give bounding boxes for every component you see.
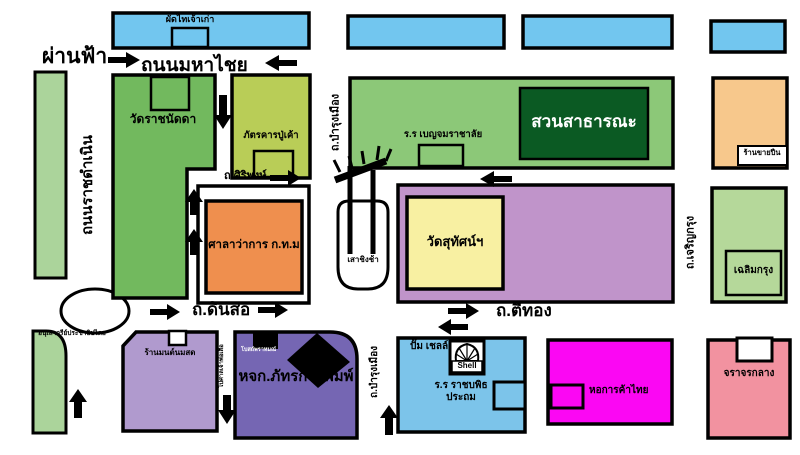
block-top-4 bbox=[711, 21, 785, 52]
place-label-wat-ratchanatda: วัดราชนัดดา bbox=[113, 113, 213, 126]
place-label-brahmin-temple: โบสถ์พราหมณ์ bbox=[241, 348, 276, 354]
arrow-right-icon bbox=[150, 304, 180, 320]
place-label-chamber-of-commerce: หอการค้าไทย bbox=[589, 386, 648, 397]
milk-shop-marker bbox=[169, 331, 186, 345]
arrow-up-icon bbox=[380, 405, 398, 435]
map-shapes-layer bbox=[0, 0, 800, 455]
arrow-right-icon bbox=[108, 52, 140, 68]
chamber-marker bbox=[551, 385, 583, 408]
place-label-milk-shop: ร้านมนต์นมสด bbox=[130, 349, 210, 357]
arrow-left-icon bbox=[265, 55, 297, 71]
arrow-up-icon bbox=[69, 389, 87, 418]
block-left-strip-top bbox=[35, 72, 66, 278]
street-label-bamrung-mueang-bottom: ถ.บำรุงเมือง bbox=[370, 328, 382, 416]
place-label-phattra-printing: หจก.ภัทรการพิมพ์ bbox=[237, 369, 355, 385]
padthai-shop-marker bbox=[172, 28, 208, 47]
street-label-dinso: ถ.ดินสอ bbox=[192, 301, 250, 319]
block-top-3 bbox=[523, 16, 672, 48]
central-traffic-notch bbox=[737, 338, 772, 361]
street-label-charoen-krung: ถ.เจริญกรุง bbox=[686, 193, 699, 293]
block-chalerm-krung bbox=[712, 188, 786, 302]
arrow-right-icon bbox=[448, 303, 479, 319]
place-label-benjamarachalai-school: ร.ร เบญจมราชาลัย bbox=[397, 130, 489, 140]
block-top-2 bbox=[348, 16, 504, 48]
street-label-siri-phong: ถ.ศิริพงษ์ bbox=[224, 171, 266, 183]
rajabopit-school-marker bbox=[494, 382, 525, 409]
place-label-chalerm-krung: เฉลิมกรุง bbox=[726, 266, 781, 277]
street-label-ratchadamnoen: ถนนราชดำเนิน bbox=[80, 115, 96, 255]
block-chamber-of-commerce bbox=[548, 340, 672, 424]
place-label-democracy-monument: อนุเสาวรีย์ประชาธิปไตย bbox=[14, 331, 130, 338]
place-label-pu-kao-restaurant: ภัตรคารปู่เค้า bbox=[232, 131, 310, 141]
place-label-central-traffic: จราจรกลาง bbox=[710, 369, 788, 380]
place-label-wat-suthat: วัดสุทัศน์ฯ bbox=[407, 235, 503, 249]
street-map: ผ่านฟ้า ถนนมหาไชย ถนนราชดำเนิน ถ.ศิริพงษ… bbox=[0, 0, 800, 455]
place-label-pad-thai-shop: ผัดไทเจ้าเก่า bbox=[150, 15, 230, 24]
place-label-rajabopit-school-line1: ร.ร ราชบพิธ bbox=[428, 381, 494, 392]
place-label-giant-swing: เสาชิงช้า bbox=[337, 256, 389, 264]
street-label-phan-fa: ผ่านฟ้า bbox=[42, 46, 107, 68]
street-label-bamrung-mueang-top: ถ.บำรุงเมือง bbox=[331, 78, 344, 168]
arrow-left-icon bbox=[438, 319, 468, 335]
street-label-lane-to-shrine: ไปศาลเจ้าพ่อเสือ bbox=[219, 334, 227, 398]
block-milk-shop bbox=[123, 332, 217, 431]
place-label-public-park: สวนสาธารณะ bbox=[520, 113, 648, 131]
block-pu-kao-restaurant bbox=[232, 75, 310, 178]
place-label-shell-station: ปั๊ม เชลล์ bbox=[410, 342, 448, 353]
place-label-gun-shop: ร้านขายปืน bbox=[739, 149, 785, 157]
shell-logo-text: Shell bbox=[451, 362, 483, 370]
block-left-strip-bottom bbox=[33, 331, 66, 433]
street-label-ti-thong: ถ.ตีทอง bbox=[496, 302, 552, 320]
street-label-maha-chai: ถนนมหาไชย bbox=[141, 56, 248, 76]
place-label-city-hall: ศาลาว่าการ ก.ท.ม bbox=[206, 239, 302, 251]
place-label-rajabopit-school-line2: ประถม bbox=[428, 393, 494, 404]
